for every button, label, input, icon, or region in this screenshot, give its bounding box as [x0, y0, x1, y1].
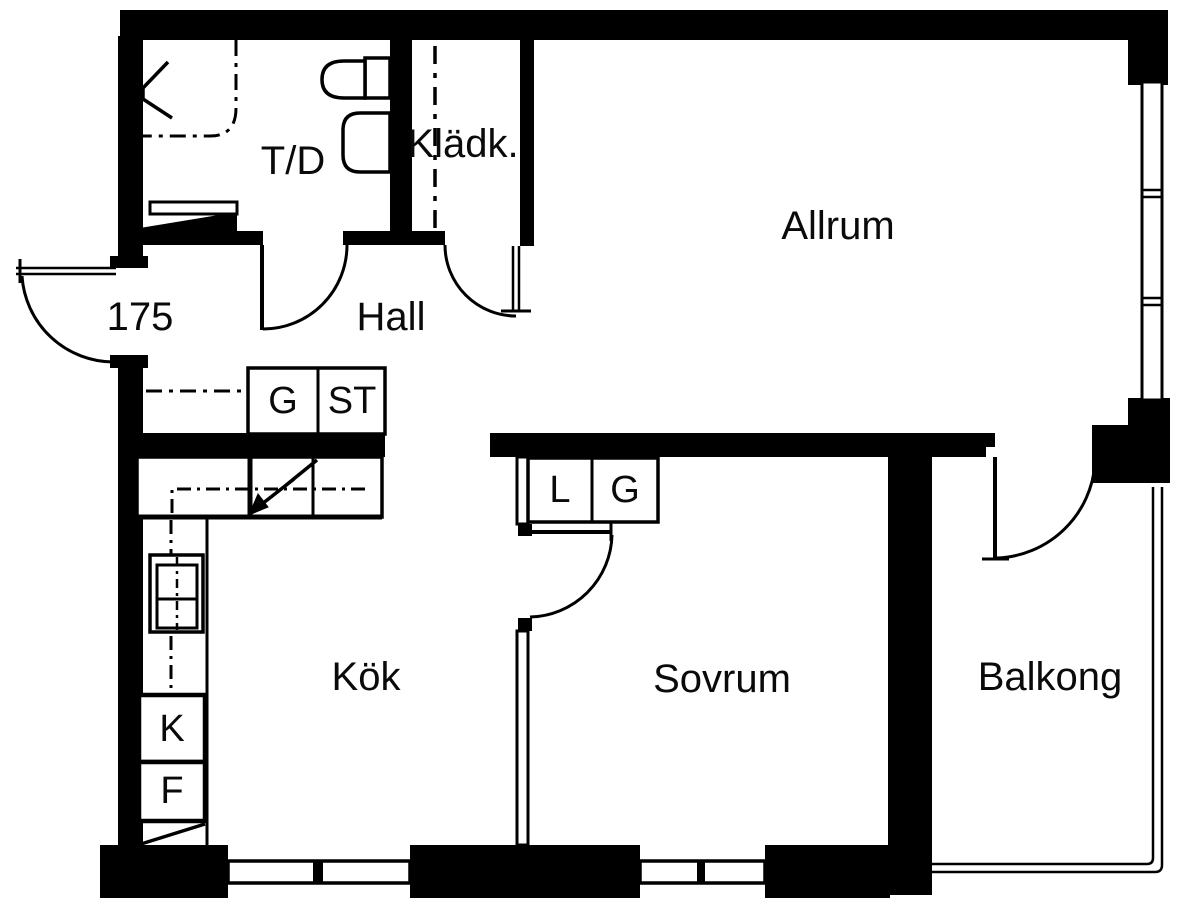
- wall-bath-hall-left: [118, 231, 263, 245]
- pillar-top-right: [1128, 40, 1168, 85]
- balcony-railing: [932, 487, 1162, 872]
- door-entrance: [16, 259, 116, 362]
- wall-kok-sovrum-lower: [517, 631, 528, 845]
- floorplan-drawing: [0, 0, 1200, 915]
- wall-bath-hall-right: [343, 231, 445, 245]
- counter-diagonal: [141, 824, 205, 844]
- door-entrance-swing: [22, 276, 114, 362]
- wall-sovrum-balkong-divider: [888, 433, 932, 895]
- jamb-sovrum-door-bottom: [518, 618, 532, 631]
- door-sovrum-swing: [530, 535, 612, 617]
- pillar-bottom-right-ext: [1092, 425, 1132, 483]
- wall-bottom-left-block: [100, 845, 228, 898]
- door-td-swing: [263, 245, 347, 329]
- door-balkong: [982, 447, 1095, 560]
- window-sovrum-post: [697, 861, 705, 883]
- door-sovrum: [528, 523, 612, 617]
- freezer-f-box: [139, 762, 205, 821]
- floorplan-page: T/DKlädk.HallAllrumKökSovrumBalkong175GS…: [0, 0, 1200, 915]
- sink: [343, 113, 390, 172]
- inner-walls: [118, 36, 534, 631]
- shower: [143, 40, 236, 136]
- toilet-bowl: [322, 61, 365, 98]
- wall-allrum-south: [490, 433, 995, 457]
- wall-left-foot-upper: [110, 256, 148, 268]
- pillar-bottom-right: [1128, 398, 1170, 483]
- shower-boundary-dashdot: [143, 40, 236, 136]
- fridge-k-box: [139, 695, 205, 762]
- bathroom-fixtures: [322, 58, 390, 172]
- stove: [150, 555, 203, 632]
- window-kok-post: [313, 861, 323, 883]
- door-td: [262, 245, 347, 330]
- cabinet-l-g: [528, 458, 658, 522]
- cabinet-g-st: [248, 368, 385, 434]
- wall-kladk-allrum-divider: [520, 36, 534, 246]
- wall-top: [120, 10, 1168, 40]
- bath-bench: [150, 202, 237, 214]
- wall-bar-under-gst: [135, 433, 385, 457]
- door-kladk-swing: [445, 245, 516, 316]
- wall-bottom-right-block: [765, 845, 890, 898]
- wall-bottom-mid-block: [410, 845, 640, 898]
- shower-drain-icon: [143, 62, 172, 118]
- door-balkong-swing: [997, 463, 1095, 558]
- window-allrum-east: [1142, 82, 1162, 400]
- toilet-tank: [365, 58, 390, 98]
- door-kladk: [445, 245, 531, 316]
- wall-td-kladk-divider: [390, 36, 412, 231]
- fridge-freezer: [139, 695, 205, 821]
